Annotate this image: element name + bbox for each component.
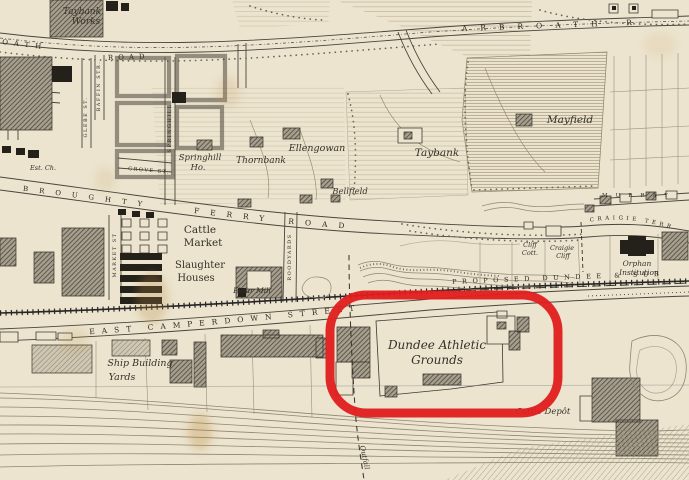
- murray-street-label: MURRAY: [602, 193, 676, 199]
- springhill-house-label-2: Ho.: [189, 163, 205, 173]
- taybank-works-label-2: Works: [72, 17, 101, 27]
- dundee-athletic-grounds-label-1: Dundee Athletic: [387, 338, 486, 352]
- orphan-institution-label-1: Orphan: [623, 259, 652, 268]
- established-church-label: Est. Ch.: [29, 164, 56, 172]
- glebe-street-label: GLEBE ST.: [83, 97, 89, 138]
- cliff-cottage-label-1: Cliff: [523, 241, 538, 249]
- baffin-street-label: BAFFIN STR.: [96, 61, 102, 112]
- springhill-street-label: SPRINGHILL: [167, 104, 173, 153]
- market-street-label: MARKET ST: [112, 232, 118, 277]
- bellfield-label: Bellfield: [331, 187, 368, 197]
- historical-map: OATH ROAD ARBROATH R BROUGHTY FERRY ROAD…: [0, 0, 689, 480]
- dundee-athletic-grounds-label-2: Grounds: [411, 353, 463, 367]
- cattle-market-label-2: Market: [184, 237, 224, 249]
- arbroath-road-label-left-b: ROAD: [108, 53, 150, 62]
- ship-building-yards-label-1: Ship Building: [107, 358, 172, 369]
- taybank-works-label-1: Taybank: [63, 7, 101, 17]
- ellengowan-label: Ellengowan: [288, 143, 345, 154]
- cattle-market-label-1: Cattle: [184, 224, 216, 236]
- roodyards-label: ROODYARDS: [287, 233, 293, 280]
- slaughter-houses-label-2: Houses: [177, 273, 214, 284]
- thornbank-label: Thornbank: [236, 156, 286, 166]
- orphan-institution-label-2: Institution: [618, 268, 659, 277]
- mayfield-label: Mayfield: [546, 114, 594, 126]
- craigie-cliff-label-2: Cliff: [556, 252, 571, 260]
- taybank-label: Taybank: [415, 147, 460, 159]
- springhill-house-label-1: Springhill: [179, 153, 222, 163]
- cliff-cottage-label-2: Cott.: [522, 249, 538, 257]
- ship-building-yards-label-2: Yards: [109, 372, 136, 383]
- craigie-cliff-label-1: Craigie: [550, 244, 574, 252]
- slaughter-houses-label-1: Slaughter: [175, 260, 225, 271]
- flour-mill-label: Flour Mill: [232, 286, 271, 295]
- map-canvas[interactable]: OATH ROAD ARBROATH R BROUGHTY FERRY ROAD…: [0, 0, 689, 480]
